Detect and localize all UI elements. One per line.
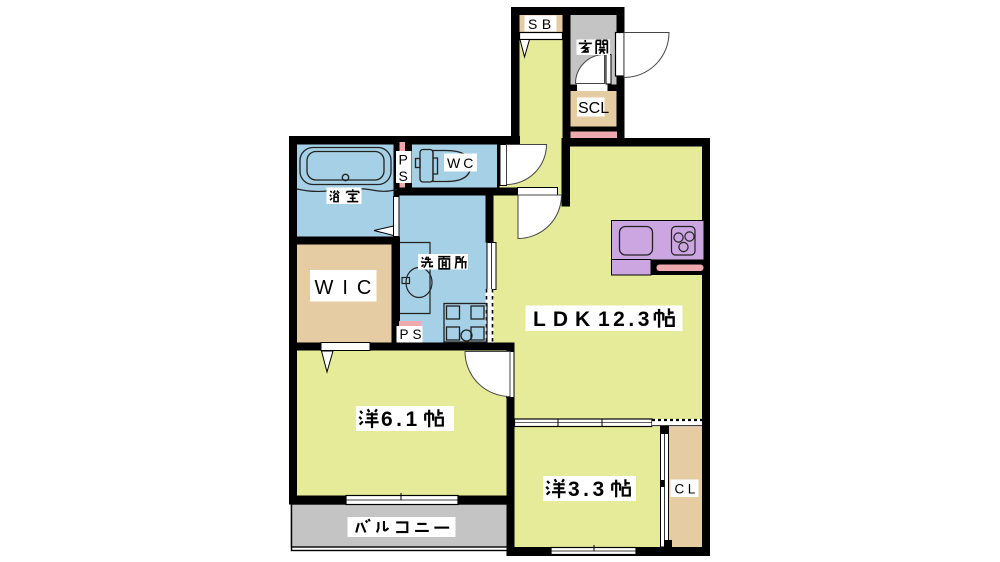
svg-text:LDK: LDK (533, 308, 597, 331)
svg-text:WC: WC (447, 155, 476, 171)
svg-text:WIC: WIC (315, 277, 381, 299)
svg-text:S: S (399, 168, 408, 184)
svg-text:SB: SB (528, 16, 556, 32)
svg-text:CL: CL (675, 482, 699, 497)
svg-text:12.3: 12.3 (598, 308, 653, 331)
svg-text:PS: PS (400, 327, 426, 342)
svg-text:3.3: 3.3 (568, 478, 608, 501)
svg-text:SCL: SCL (578, 100, 609, 117)
svg-text:6.1: 6.1 (381, 408, 421, 431)
svg-text:P: P (399, 152, 408, 168)
